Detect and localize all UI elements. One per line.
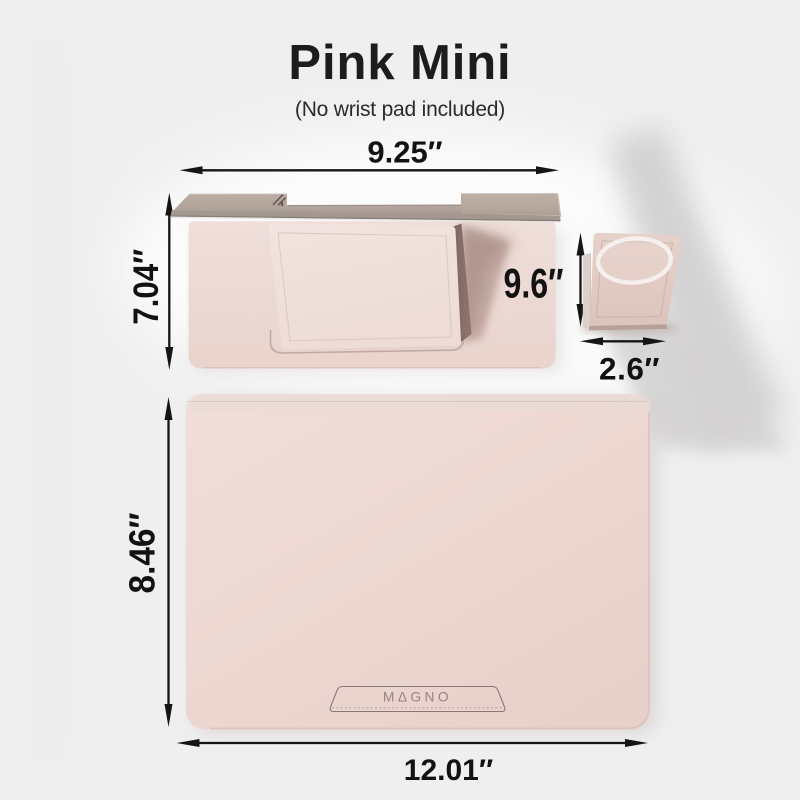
svg-text:9.6″: 9.6″: [504, 260, 564, 307]
svg-text:(No wrist pad included): (No wrist pad included): [295, 98, 505, 121]
svg-text:8.46″: 8.46″: [122, 513, 163, 594]
svg-text:9.25″: 9.25″: [367, 135, 442, 170]
svg-text:2.6″: 2.6″: [599, 351, 660, 387]
svg-text:7.04″: 7.04″: [127, 249, 166, 325]
svg-text:Pink Mini: Pink Mini: [288, 36, 511, 90]
svg-text:MΔGNO: MΔGNO: [383, 690, 452, 705]
svg-text:12.01″: 12.01″: [404, 754, 493, 787]
